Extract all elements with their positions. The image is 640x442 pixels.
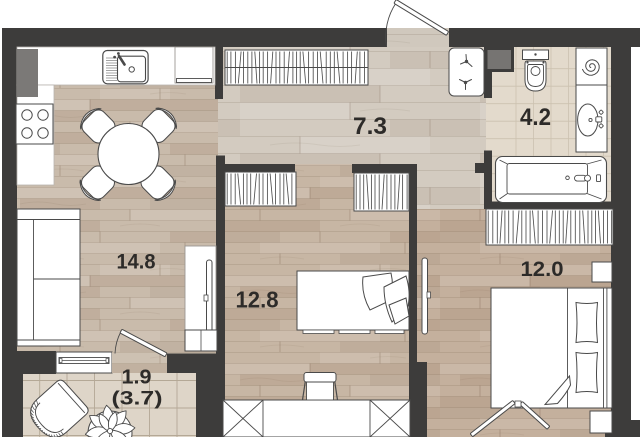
svg-text:4.2: 4.2 — [520, 104, 551, 131]
svg-text:7.3: 7.3 — [353, 113, 387, 140]
svg-text:12.0: 12.0 — [521, 257, 564, 281]
svg-text:14.8: 14.8 — [117, 250, 156, 274]
svg-text:1.9: 1.9 — [122, 367, 152, 389]
svg-text:12.8: 12.8 — [236, 287, 279, 313]
svg-text:(3.7): (3.7) — [112, 388, 163, 410]
